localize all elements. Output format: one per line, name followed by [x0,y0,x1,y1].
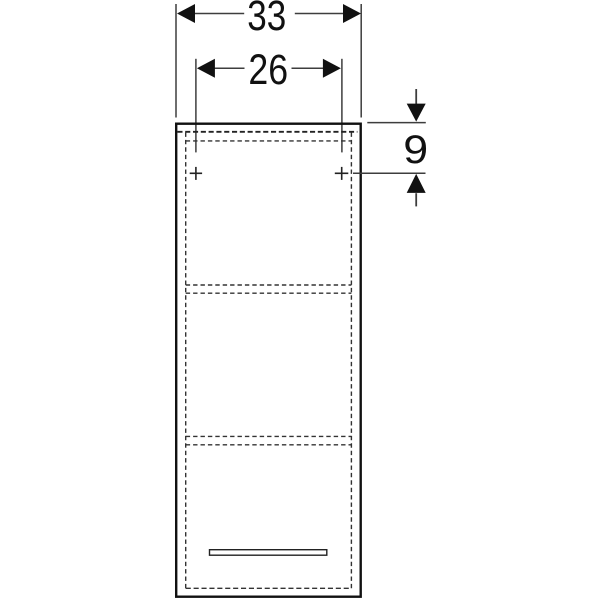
svg-text:9: 9 [403,127,428,171]
svg-text:26: 26 [248,46,288,94]
svg-text:33: 33 [247,0,286,40]
